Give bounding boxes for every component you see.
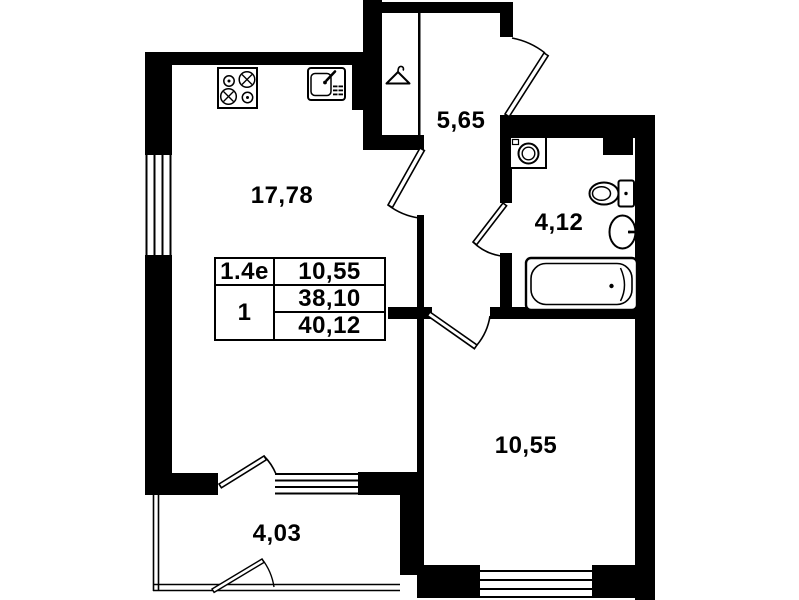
wall-top-thin [363, 2, 513, 13]
wall-bedroom-bottom-left [417, 565, 480, 598]
room-label-bathroom: 4,12 [535, 209, 584, 237]
wall-right [635, 122, 655, 600]
door-balcony-leaf [219, 456, 266, 488]
wall-bottom-right-arm [358, 472, 424, 495]
wall-living-bedroom [417, 215, 424, 565]
wall-bottom-left-arm [145, 473, 218, 495]
balcony-sash-leaf [212, 559, 264, 592]
room-label-living-kitchen: 17,78 [251, 182, 314, 210]
door-balcony-arc [264, 456, 276, 474]
apartment-info-table: 1.4е 10,55 1 38,10 40,12 [214, 257, 386, 341]
stove-icon [218, 68, 257, 108]
room-label-bedroom: 10,55 [495, 432, 558, 460]
door-bathroom-leaf [473, 203, 507, 245]
wall-closet-left [363, 0, 382, 150]
kitchen-sink-icon [308, 68, 345, 100]
info-table-area-cell: 38,10 [275, 286, 384, 313]
wall-bath-left-lower [500, 253, 512, 319]
wall-bath-top [500, 115, 655, 138]
wall-kitchen-stub [352, 65, 363, 110]
window-living-balcony [275, 474, 358, 494]
door-living-leaf [388, 148, 424, 208]
wall-entrance-stub [500, 13, 513, 37]
door-bedroom-leaf [427, 312, 477, 349]
info-table-total-area-cell: 40,12 [275, 313, 384, 339]
room-label-hallway: 5,65 [437, 107, 486, 135]
wall-left-lower [145, 255, 172, 495]
floor-plan: 17,78 5,65 4,12 10,55 4,03 1.4е 10,55 1 … [0, 0, 799, 600]
balcony-window-sash [212, 559, 274, 592]
bathtub-icon [526, 258, 637, 310]
wall-top-left [145, 52, 382, 65]
wall-bedroom-bottom-right [592, 565, 655, 598]
closet-partition-line [418, 13, 421, 135]
info-table-type-cell: 1.4е [216, 259, 275, 286]
door-balcony [219, 456, 276, 488]
washing-machine-icon [510, 137, 546, 168]
door-living [388, 148, 424, 218]
door-bedroom-arc [477, 316, 490, 345]
floor-plan-graphics [0, 0, 799, 600]
info-table-unit-cell: 1 [216, 286, 275, 339]
wall-balcony-partition [400, 495, 418, 575]
wall-hall-bottom-left [388, 307, 432, 319]
door-bathroom [473, 203, 507, 256]
window-living-left [147, 155, 171, 255]
door-entrance [505, 38, 548, 117]
wall-left-upper [145, 52, 172, 155]
door-entrance-arc [512, 38, 545, 53]
toilet-icon [590, 181, 635, 207]
window-bedroom [480, 571, 592, 597]
wall-closet-bottom [363, 135, 424, 150]
door-entrance-leaf [505, 53, 548, 117]
vent-shaft-block [603, 138, 633, 155]
info-table-living-area-cell: 10,55 [275, 259, 384, 286]
door-bedroom [427, 312, 490, 349]
wardrobe-hanger-icon [387, 66, 410, 83]
room-label-balcony: 4,03 [253, 520, 302, 548]
